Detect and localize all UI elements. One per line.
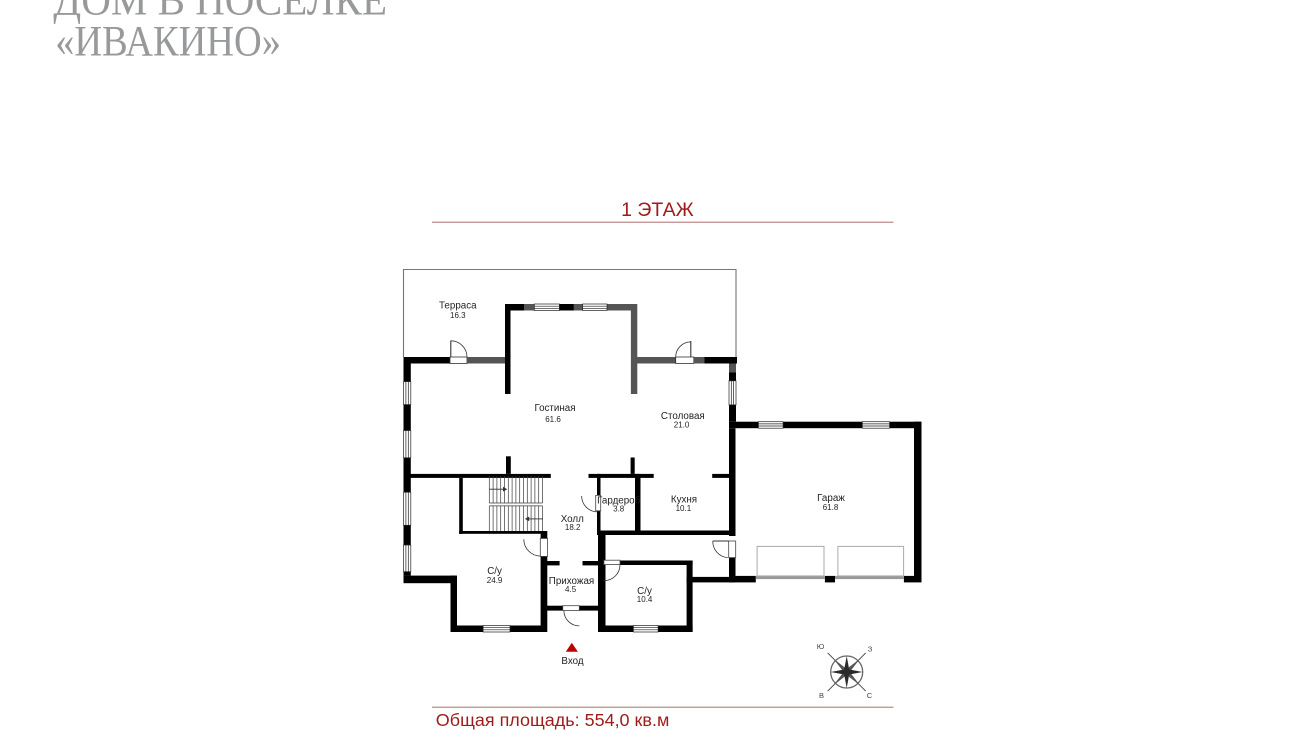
- svg-text:Общая площадь: 554,0 кв.м: Общая площадь: 554,0 кв.м: [436, 710, 670, 730]
- svg-text:10.4: 10.4: [637, 595, 653, 604]
- svg-text:21.0: 21.0: [674, 421, 690, 430]
- svg-text:С: С: [867, 691, 873, 700]
- svg-text:Ю: Ю: [817, 642, 825, 651]
- svg-text:В: В: [819, 691, 824, 700]
- svg-text:61.6: 61.6: [545, 415, 561, 424]
- svg-text:З: З: [868, 645, 873, 654]
- svg-text:18.2: 18.2: [565, 523, 581, 532]
- svg-text:3.8: 3.8: [613, 505, 625, 514]
- svg-text:Вход: Вход: [561, 656, 583, 667]
- svg-text:Гостиная: Гостиная: [534, 403, 575, 414]
- svg-text:4.5: 4.5: [565, 585, 577, 594]
- svg-text:1 ЭТАЖ: 1 ЭТАЖ: [621, 199, 694, 221]
- svg-text:61.8: 61.8: [823, 503, 839, 512]
- svg-text:Терраса: Терраса: [439, 301, 477, 312]
- svg-text:24.9: 24.9: [487, 576, 503, 585]
- svg-text:«ИВАКИНО»: «ИВАКИНО»: [55, 18, 281, 65]
- svg-text:16.3: 16.3: [450, 311, 466, 320]
- svg-text:10.1: 10.1: [676, 504, 692, 513]
